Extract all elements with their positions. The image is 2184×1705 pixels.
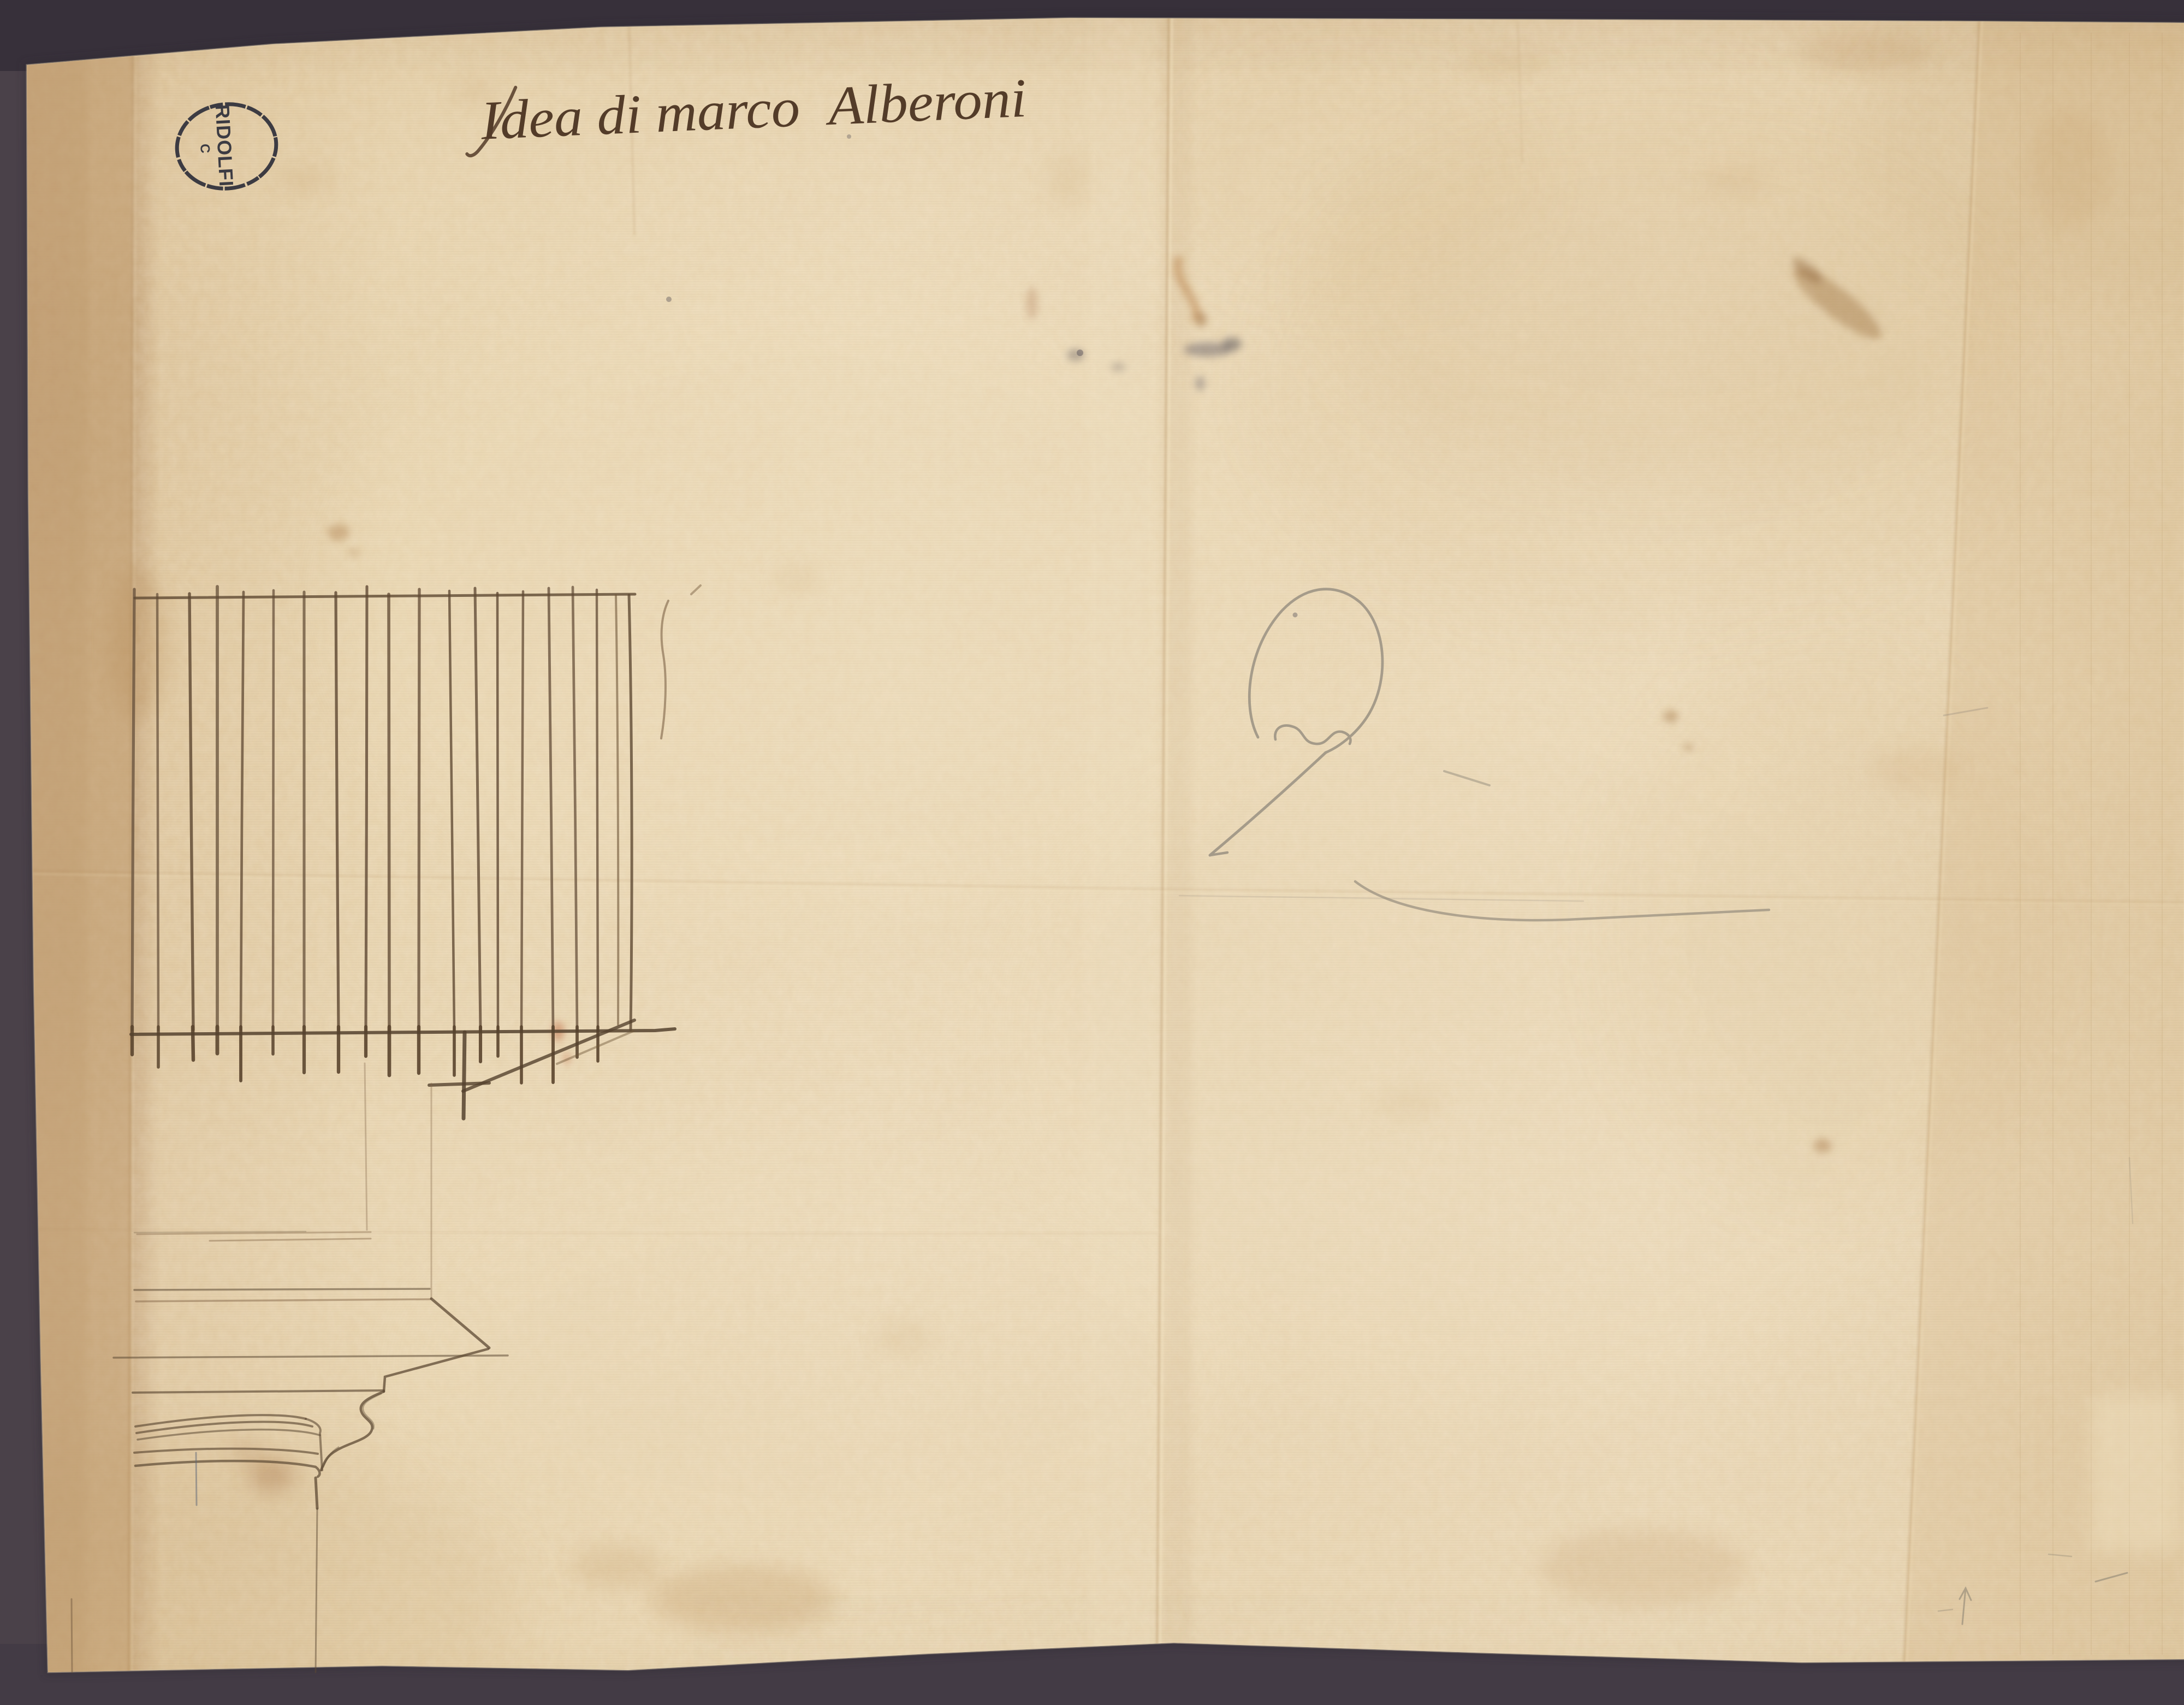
svg-text:C: C — [197, 144, 212, 154]
svg-text:RIDOLFI: RIDOLFI — [211, 104, 238, 187]
